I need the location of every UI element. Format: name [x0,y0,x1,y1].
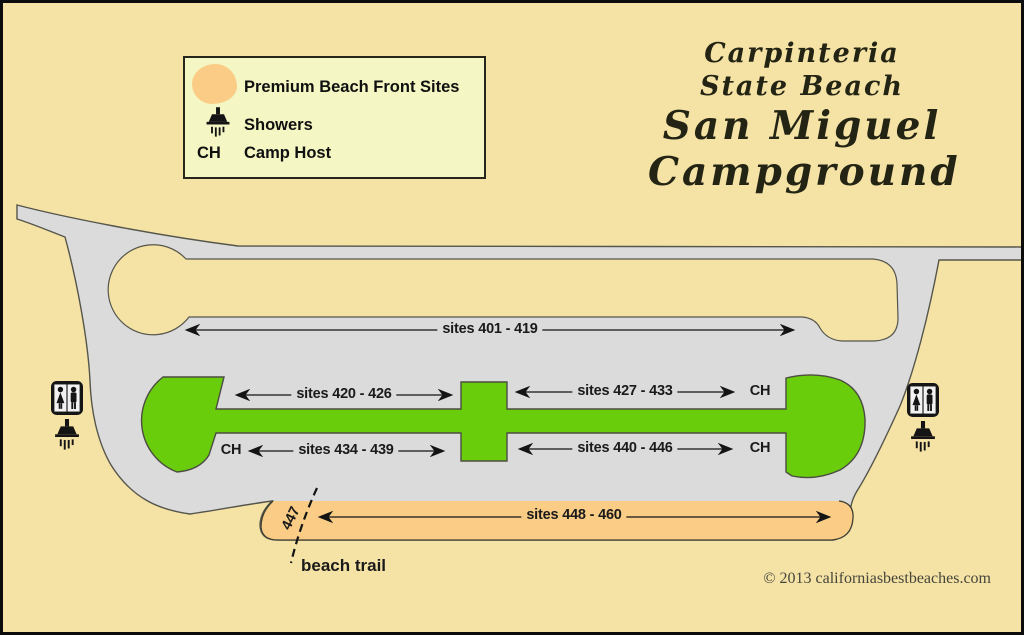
title-campground-line2: Campground [648,149,956,195]
restroom-icon [51,381,83,415]
premium-site-blob-icon [192,64,237,104]
title-park-name-line1: Carpinteria [648,37,956,70]
label-camp-host: CH [747,383,774,401]
shower-icon [55,419,79,450]
label-sites-427-433: sites 427 - 433 [572,383,677,401]
label-camp-host: CH [218,442,245,460]
title-campground-line1: San Miguel [648,103,956,149]
label-sites-434-439: sites 434 - 439 [293,442,398,460]
legend-showers-label: Showers [244,116,313,135]
shower-icon [911,421,935,452]
restroom-icon [907,383,939,417]
label-sites-420-426: sites 420 - 426 [291,386,396,404]
label-sites-440-446: sites 440 - 446 [572,440,677,458]
legend-camp-host-abbr: CH [197,144,221,163]
title-park-name-line2: State Beach [648,70,956,103]
copyright-notice: © 2013 californiasbestbeaches.com [763,570,991,588]
page-title: Carpinteria State Beach San Miguel Campg… [648,37,956,195]
label-sites-448-460: sites 448 - 460 [521,507,626,525]
legend-premium-label: Premium Beach Front Sites [244,78,459,97]
legend-camp-host-label: Camp Host [244,144,331,163]
label-camp-host: CH [747,440,774,458]
shower-icon [206,107,230,140]
label-sites-401-419: sites 401 - 419 [437,321,542,339]
legend-box: Premium Beach Front Sites Showers CH Cam… [183,56,486,179]
campground-map-page: Premium Beach Front Sites Showers CH Cam… [0,0,1024,635]
label-beach-trail: beach trail [301,556,386,576]
